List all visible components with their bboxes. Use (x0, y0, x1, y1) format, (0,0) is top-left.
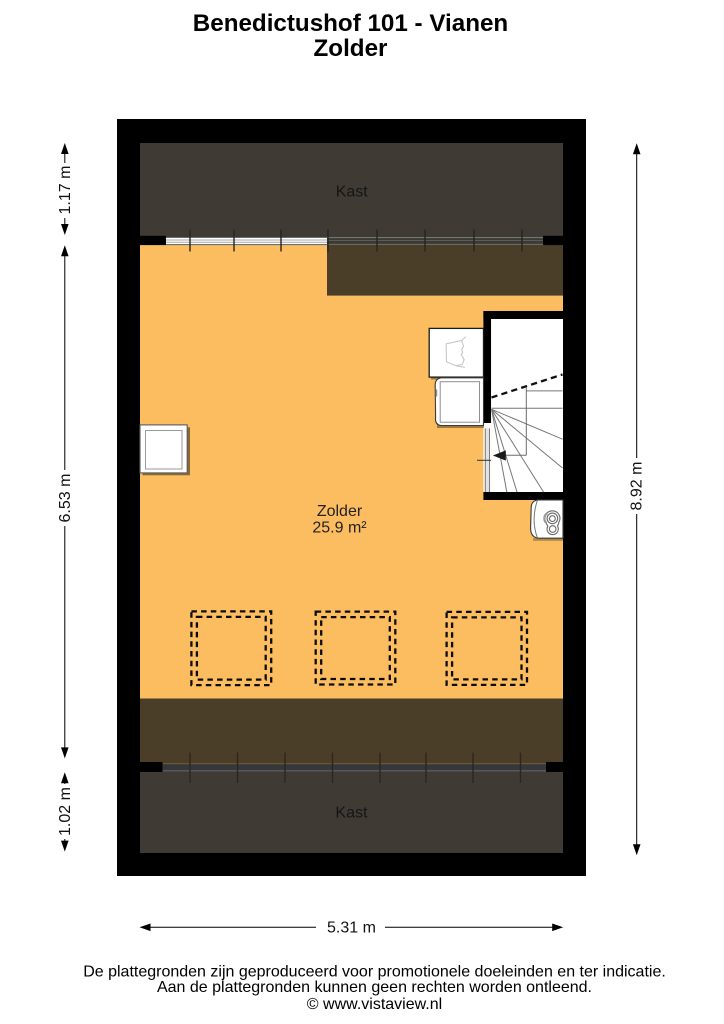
svg-text:8.92 m: 8.92 m (629, 462, 646, 511)
svg-text:25.9 m²: 25.9 m² (312, 519, 367, 536)
svg-text:Kast: Kast (336, 184, 369, 201)
svg-text:Kast: Kast (335, 805, 368, 822)
svg-text:Zolder: Zolder (314, 35, 388, 62)
svg-text:Aan de plattegronden kunnen ge: Aan de plattegronden kunnen geen rechten… (157, 979, 592, 996)
svg-text:Benedictushof 101 - Vianen: Benedictushof 101 - Vianen (193, 10, 508, 37)
svg-text:1.02 m: 1.02 m (57, 787, 74, 836)
svg-text:1.17 m: 1.17 m (57, 166, 74, 215)
svg-text:Zolder: Zolder (317, 503, 363, 520)
svg-text:© www.vistaview.nl: © www.vistaview.nl (307, 996, 442, 1013)
svg-text:6.53 m: 6.53 m (57, 474, 74, 523)
svg-text:5.31 m: 5.31 m (327, 919, 376, 936)
